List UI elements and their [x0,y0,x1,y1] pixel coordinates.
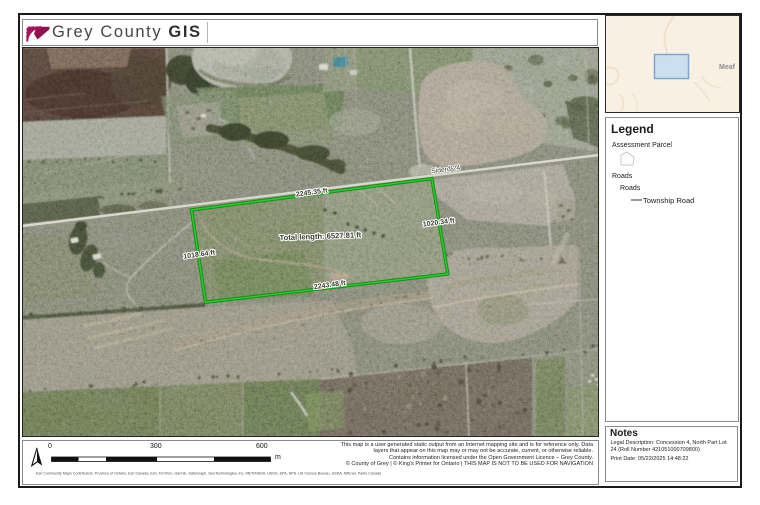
svg-text:Meaf: Meaf [719,64,736,71]
